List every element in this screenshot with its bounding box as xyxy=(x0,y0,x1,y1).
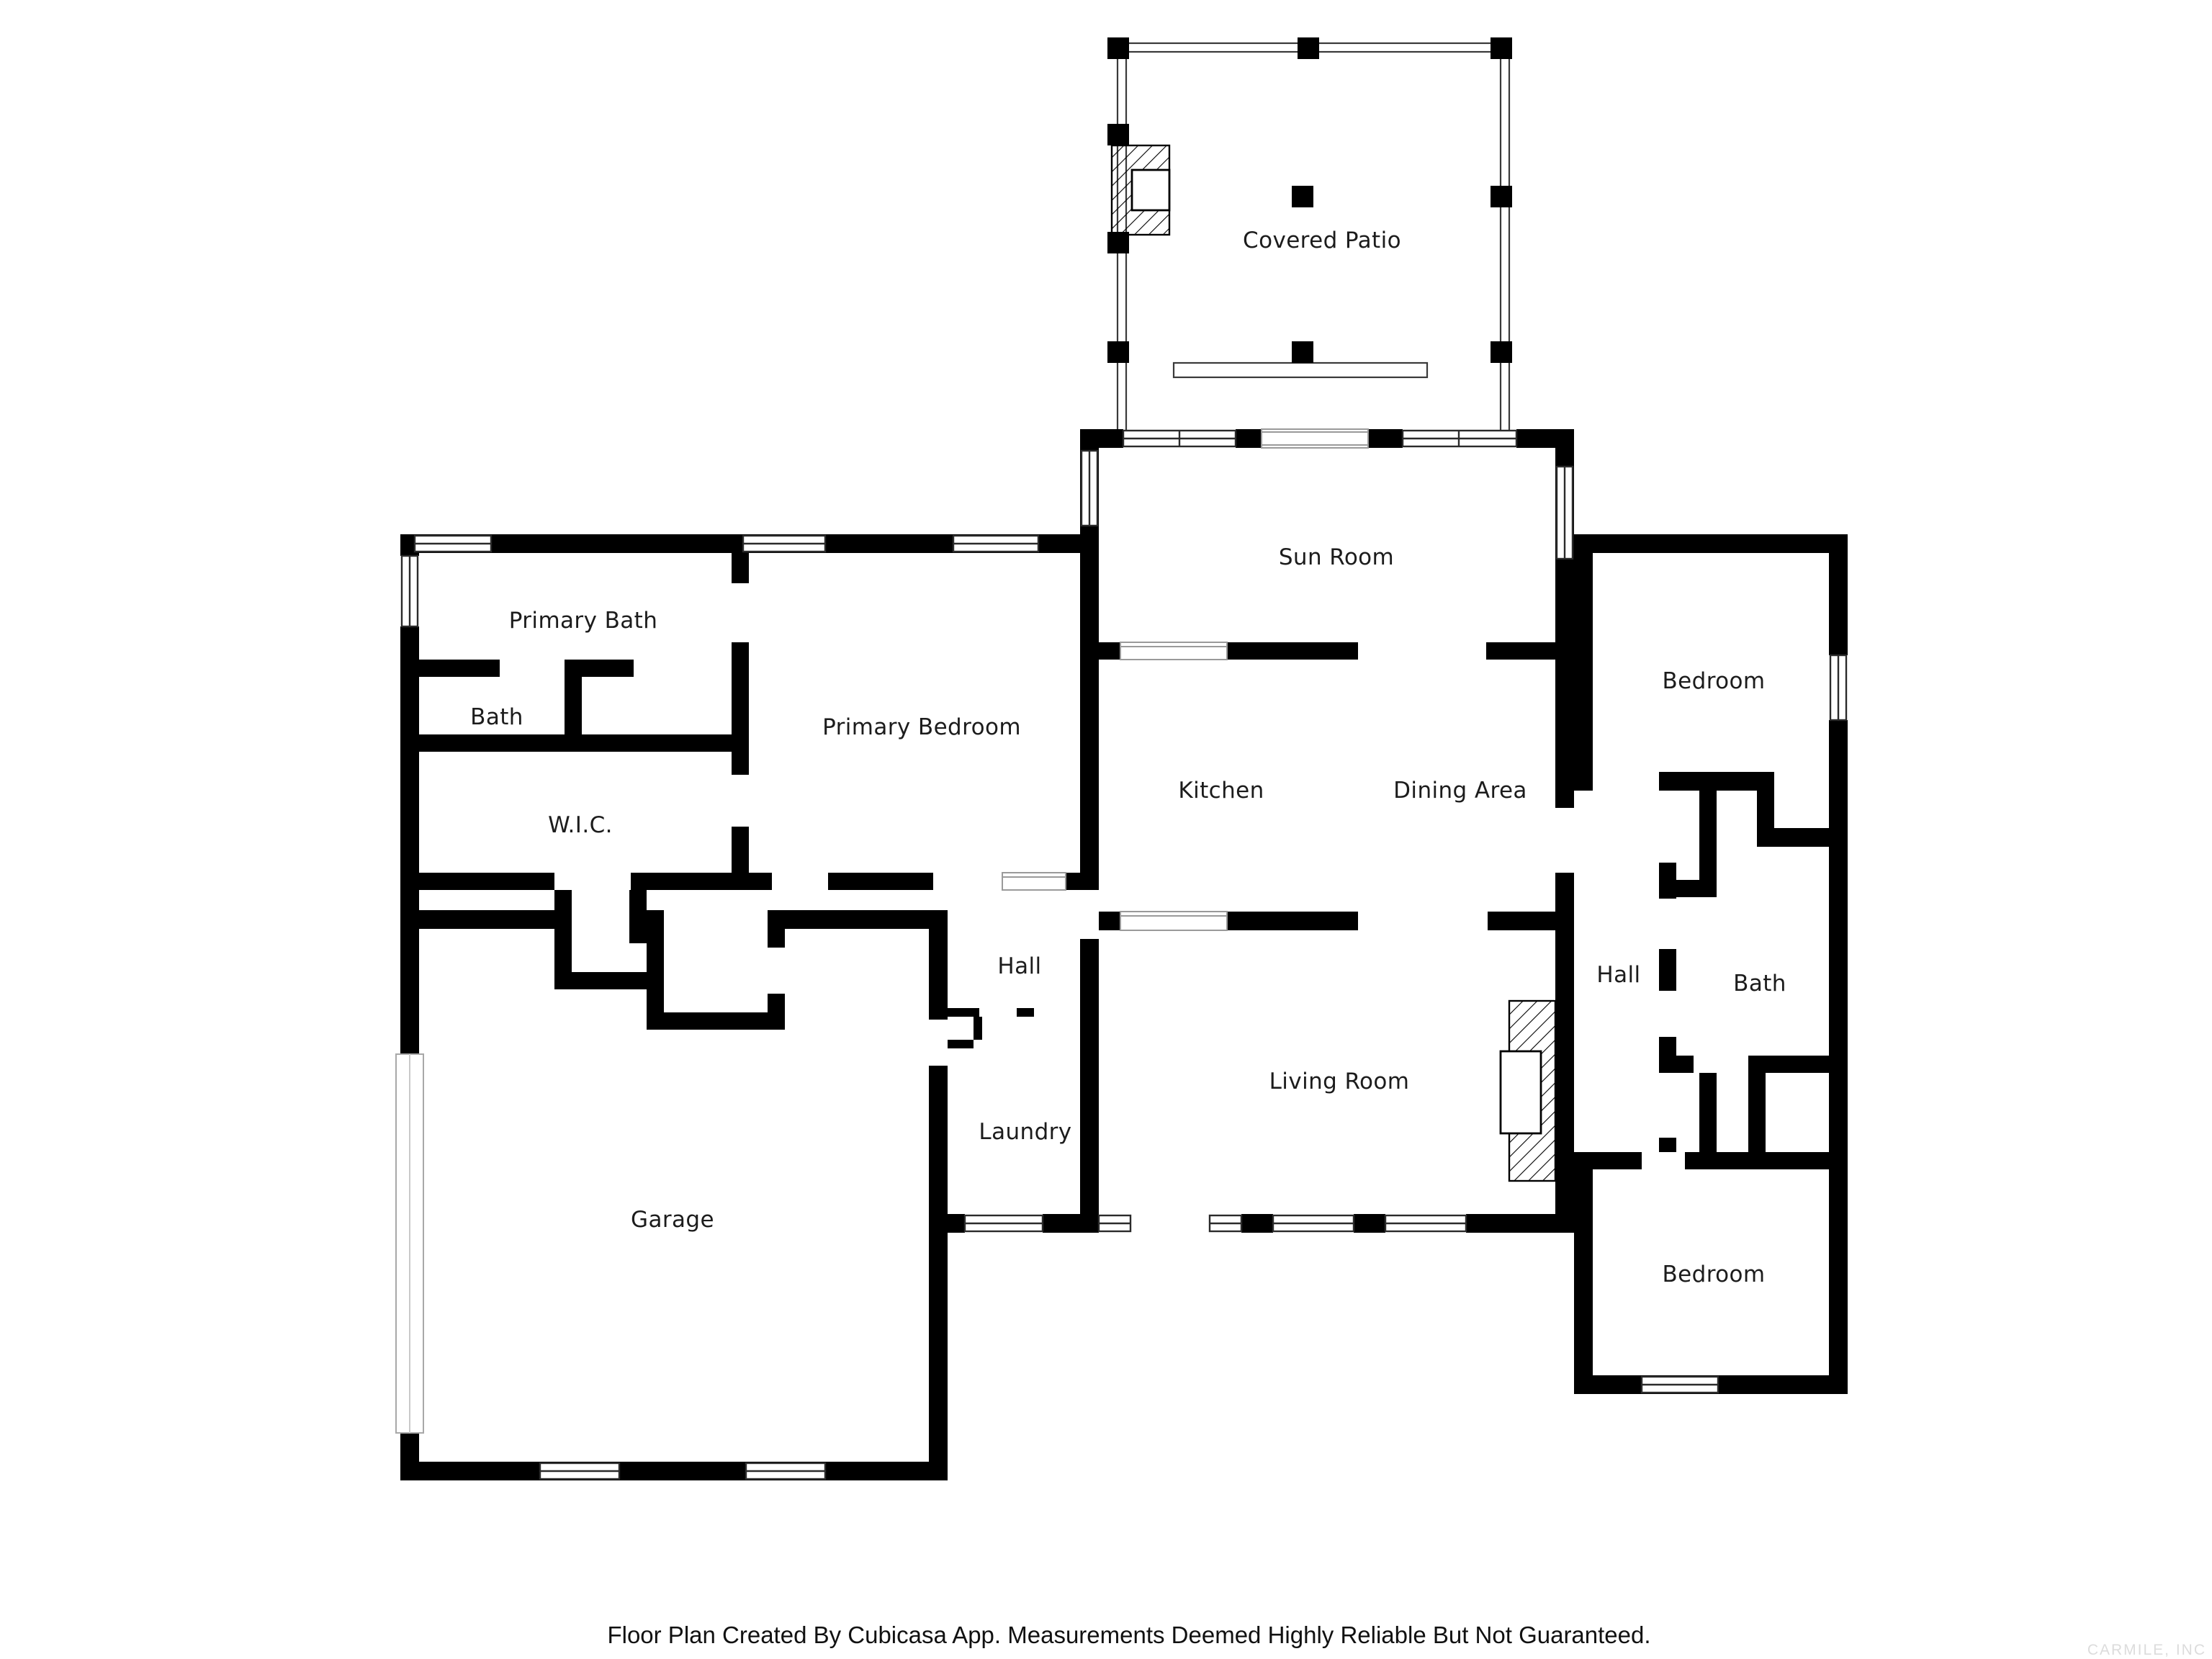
room-label-dining-area: Dining Area xyxy=(1393,778,1527,804)
patio-fireplace xyxy=(1112,145,1169,235)
corner-watermark: CARMILE, INC xyxy=(2087,1642,2206,1658)
living-room-fireplace xyxy=(1501,1001,1555,1181)
room-label-laundry: Laundry xyxy=(979,1119,1071,1145)
patio-fireplace-firebox xyxy=(1132,170,1169,210)
room-label-covered-patio: Covered Patio xyxy=(1243,228,1401,253)
footer-disclaimer: Floor Plan Created By Cubicasa App. Meas… xyxy=(607,1622,1650,1648)
living-fireplace-firebox xyxy=(1501,1051,1541,1133)
room-label-bedroom-se: Bedroom xyxy=(1662,1262,1765,1287)
room-label-living-room: Living Room xyxy=(1269,1069,1410,1094)
room-label-kitchen: Kitchen xyxy=(1178,778,1264,804)
garage-side-screen xyxy=(396,1054,423,1433)
floor-plan-page: Covered Patio Sun Room Primary Bath Bath… xyxy=(0,0,2212,1659)
room-label-hall-center: Hall xyxy=(997,953,1041,979)
floor-plan-canvas: Covered Patio Sun Room Primary Bath Bath… xyxy=(0,0,2212,1659)
patio-wall-right xyxy=(1501,43,1509,435)
room-label-garage: Garage xyxy=(631,1207,714,1233)
plan-background xyxy=(0,0,2212,1659)
room-label-bedroom-ne: Bedroom xyxy=(1662,668,1765,694)
room-label-bath-east: Bath xyxy=(1733,971,1786,997)
room-label-wic: W.I.C. xyxy=(548,812,613,838)
room-label-primary-bath: Primary Bath xyxy=(509,608,658,634)
room-label-bath: Bath xyxy=(470,704,523,730)
room-label-primary-bedroom: Primary Bedroom xyxy=(822,714,1021,740)
room-label-hall-east: Hall xyxy=(1596,962,1640,988)
room-label-sun-room: Sun Room xyxy=(1279,544,1394,570)
patio-bench xyxy=(1174,363,1427,377)
